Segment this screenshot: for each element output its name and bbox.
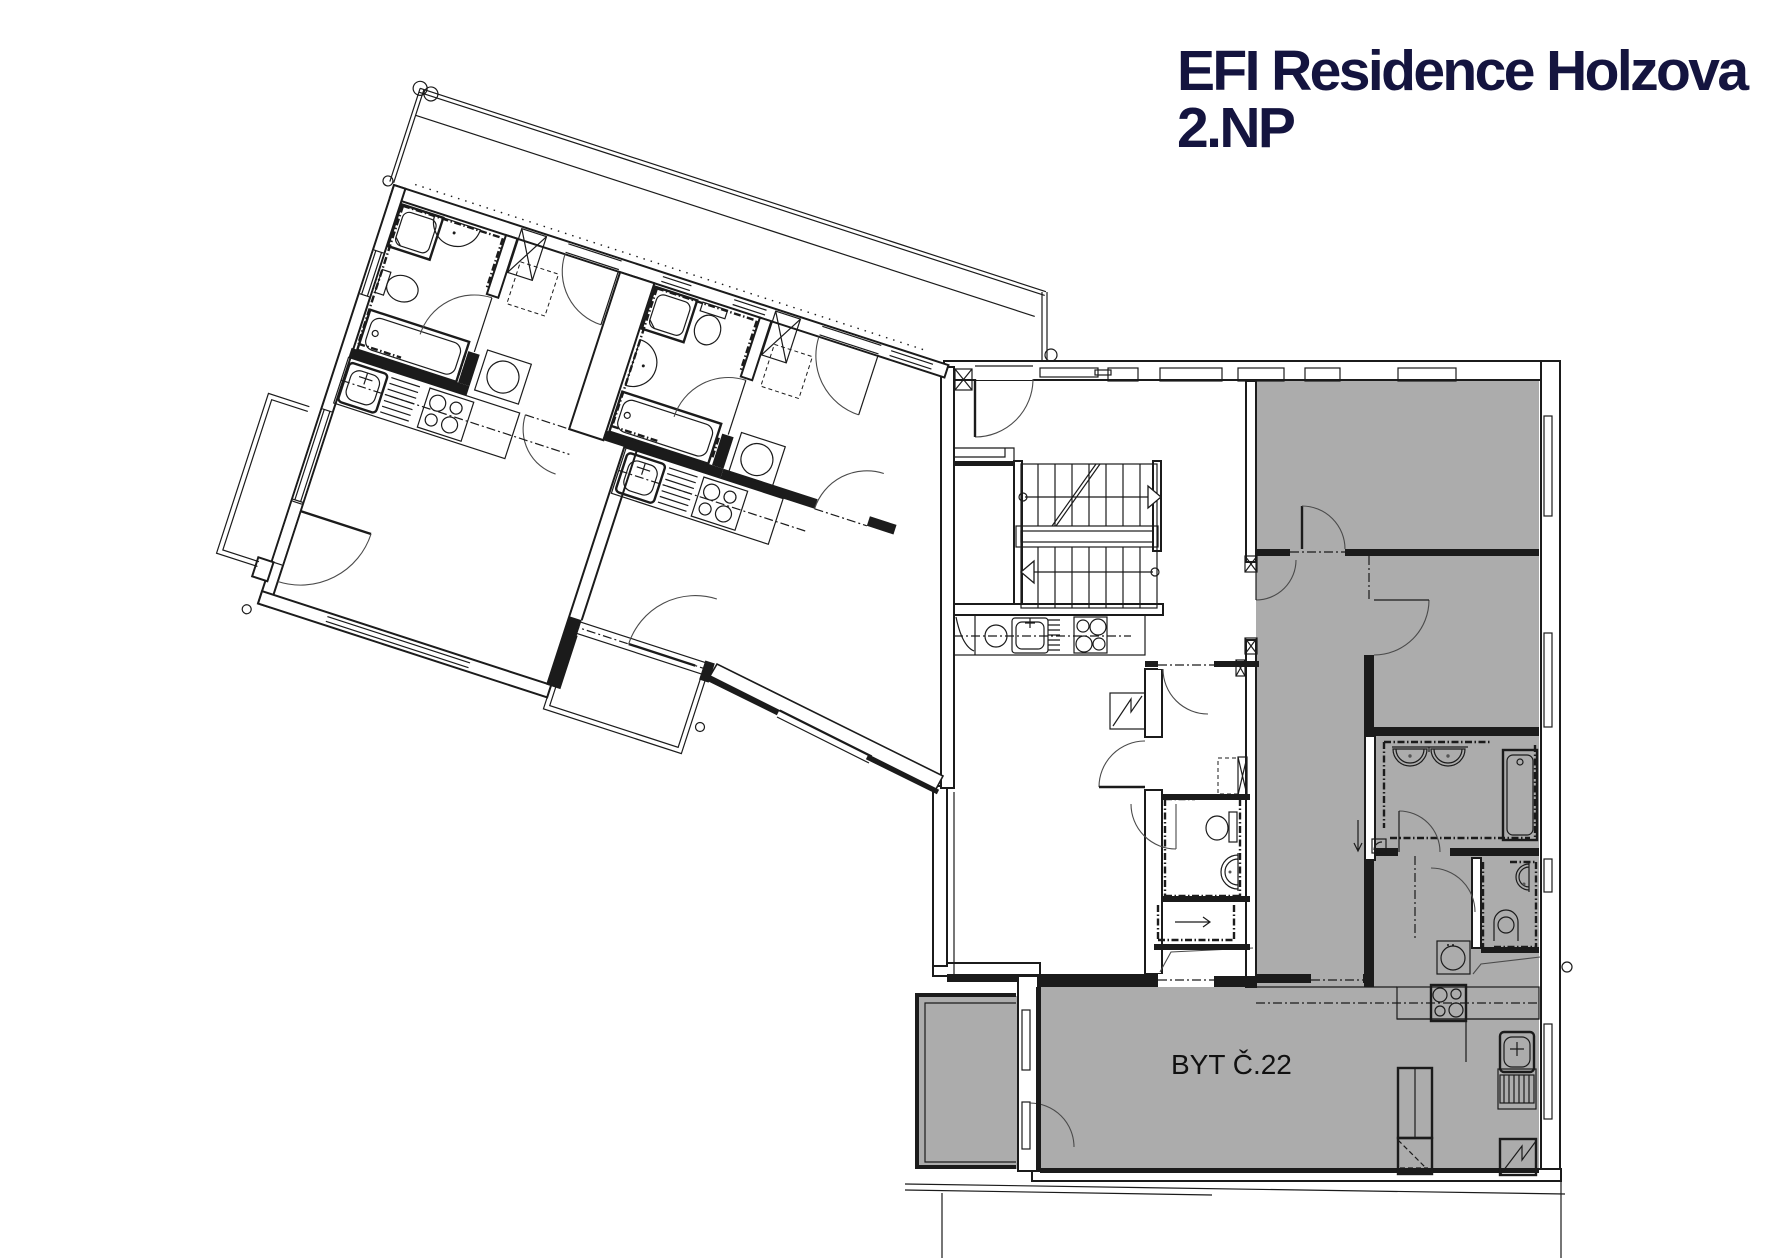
svg-text:BYT Č.22: BYT Č.22 — [1171, 1049, 1292, 1080]
